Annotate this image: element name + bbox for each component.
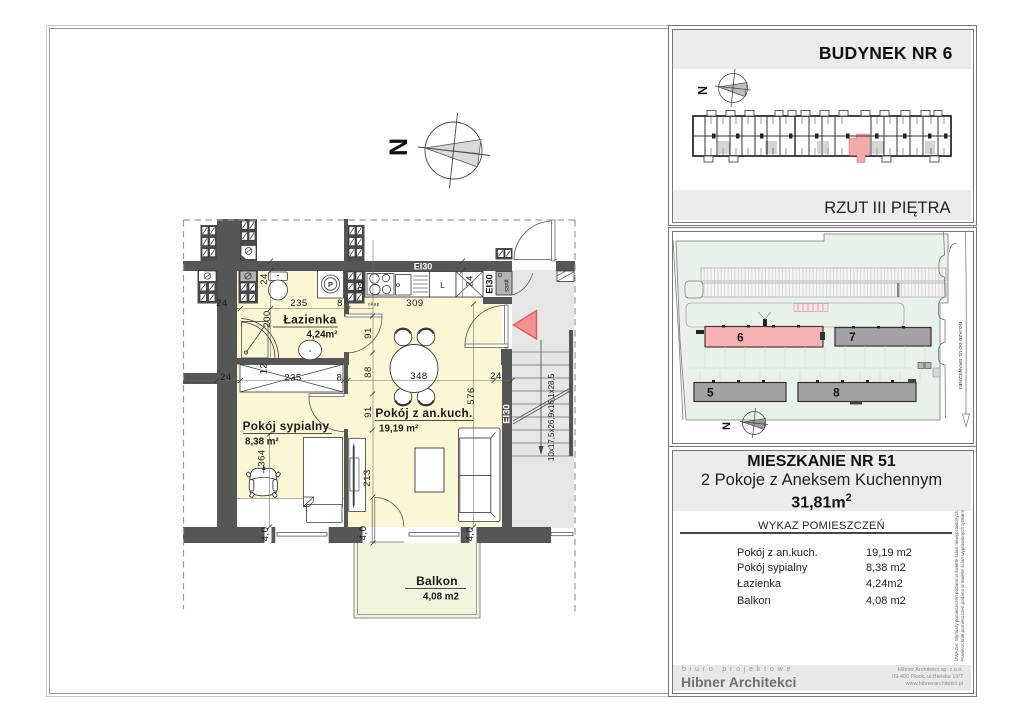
svg-text:N: N: [385, 138, 413, 156]
svg-text:24: 24: [216, 298, 228, 309]
svg-text:10x17,5x26,9x16,1x28,5: 10x17,5x26,9x16,1x28,5: [547, 373, 556, 461]
svg-text:N: N: [696, 86, 710, 95]
svg-text:91: 91: [363, 327, 374, 339]
svg-text:309: 309: [406, 298, 424, 309]
svg-text:4,0: 4,0: [358, 526, 369, 541]
svg-text:okap: okap: [368, 302, 380, 307]
svg-text:24: 24: [220, 372, 232, 383]
svg-text:Łazienka: Łazienka: [283, 313, 336, 327]
svg-text:8,38 m²: 8,38 m²: [245, 437, 280, 448]
svg-text:24: 24: [490, 371, 502, 382]
svg-text:6: 6: [737, 331, 744, 345]
svg-text:EI30: EI30: [485, 274, 496, 294]
svg-text:19,19 m²: 19,19 m²: [379, 424, 419, 435]
svg-text:24: 24: [465, 275, 476, 287]
svg-text:213: 213: [362, 469, 373, 487]
svg-text:364: 364: [257, 449, 268, 467]
svg-text:4,08 m2: 4,08 m2: [423, 592, 460, 603]
svg-text:5: 5: [707, 386, 714, 400]
svg-text:235: 235: [290, 298, 308, 309]
svg-text:N: N: [721, 422, 733, 430]
svg-text:576: 576: [466, 387, 477, 405]
svg-text:88: 88: [363, 366, 374, 378]
svg-text:4,24m²: 4,24m²: [306, 330, 338, 341]
svg-text:91: 91: [363, 406, 374, 418]
svg-text:8: 8: [337, 298, 343, 309]
svg-text:P: P: [328, 280, 333, 289]
svg-text:L: L: [440, 280, 445, 290]
svg-text:348: 348: [410, 371, 428, 382]
svg-text:DOJAZD DO UL.GRANICZNEJ: DOJAZD DO UL.GRANICZNEJ: [957, 322, 963, 390]
svg-text:235: 235: [284, 373, 302, 384]
svg-text:8: 8: [833, 386, 840, 400]
svg-text:Balkon: Balkon: [416, 574, 458, 588]
svg-text:7: 7: [849, 330, 856, 344]
svg-text:12: 12: [259, 363, 270, 375]
svg-text:Pokój z an.kuch.: Pokój z an.kuch.: [375, 406, 472, 420]
svg-text:4,0: 4,0: [260, 527, 271, 542]
svg-text:sanit: sanit: [505, 279, 511, 292]
svg-text:24: 24: [259, 273, 270, 285]
svg-text:Pokój sypialny: Pokój sypialny: [243, 419, 330, 433]
svg-text:93: 93: [357, 280, 368, 292]
svg-text:EI30: EI30: [414, 262, 433, 272]
svg-text:200: 200: [262, 310, 273, 328]
svg-text:8: 8: [337, 373, 343, 384]
svg-text:4,0: 4,0: [465, 527, 476, 542]
svg-text:EI30: EI30: [502, 404, 513, 424]
